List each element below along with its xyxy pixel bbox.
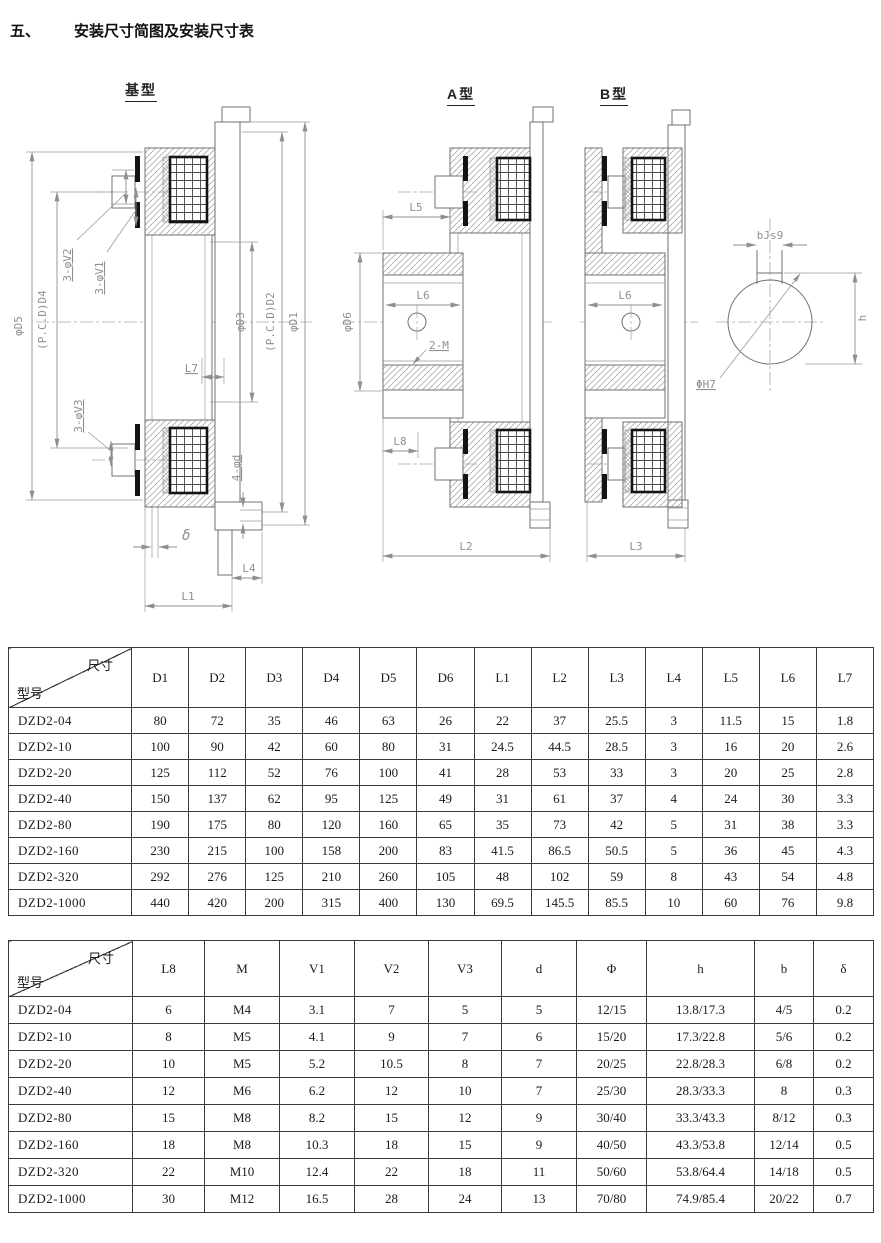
value-cell: 18 bbox=[355, 1132, 429, 1159]
model-cell: DZD2-04 bbox=[9, 708, 132, 734]
model-cell: DZD2-320 bbox=[9, 864, 132, 890]
value-cell: 20 bbox=[702, 760, 759, 786]
value-cell: 5 bbox=[645, 812, 702, 838]
value-cell: 53.8/64.4 bbox=[647, 1159, 755, 1186]
value-cell: 9 bbox=[355, 1024, 429, 1051]
value-cell: M5 bbox=[205, 1051, 280, 1078]
table-row: DZD2-16018M810.31815940/5043.3/53.812/14… bbox=[9, 1132, 874, 1159]
model-cell: DZD2-40 bbox=[9, 1078, 133, 1105]
value-cell: 0.3 bbox=[814, 1078, 874, 1105]
value-cell: 12 bbox=[355, 1078, 429, 1105]
type-a-drawing: 2-M L5 φD6 L6 L8 L2 bbox=[340, 100, 585, 570]
dim-label-b: bJs9 bbox=[757, 229, 784, 242]
value-cell: 62 bbox=[246, 786, 303, 812]
model-cell: DZD2-160 bbox=[9, 838, 132, 864]
value-cell: 5 bbox=[645, 838, 702, 864]
dim-l4: L4 bbox=[232, 532, 262, 584]
value-cell: 22 bbox=[133, 1159, 205, 1186]
pulley-hub bbox=[585, 253, 665, 418]
model-cell: DZD2-80 bbox=[9, 1105, 133, 1132]
value-cell: 65 bbox=[417, 812, 474, 838]
value-cell: 22 bbox=[474, 708, 531, 734]
corner-label-model: 型号 bbox=[17, 972, 43, 991]
value-cell: 26 bbox=[417, 708, 474, 734]
value-cell: 16 bbox=[702, 734, 759, 760]
keyway-detail: bJs9 h ΦH7 bbox=[696, 218, 869, 392]
value-cell: 80 bbox=[360, 734, 417, 760]
value-cell: 420 bbox=[189, 890, 246, 916]
value-cell: 41 bbox=[417, 760, 474, 786]
column-header: D6 bbox=[417, 648, 474, 708]
value-cell: 37 bbox=[531, 708, 588, 734]
value-cell: 0.2 bbox=[814, 997, 874, 1024]
value-cell: 0.5 bbox=[814, 1132, 874, 1159]
value-cell: 4 bbox=[645, 786, 702, 812]
value-cell: 12/14 bbox=[755, 1132, 814, 1159]
value-cell: 46 bbox=[303, 708, 360, 734]
value-cell: 17.3/22.8 bbox=[647, 1024, 755, 1051]
value-cell: 30 bbox=[759, 786, 816, 812]
value-cell: 28.3/33.3 bbox=[647, 1078, 755, 1105]
value-cell: 12 bbox=[429, 1105, 502, 1132]
value-cell: 190 bbox=[132, 812, 189, 838]
dim-label-h: h bbox=[856, 315, 869, 322]
value-cell: 100 bbox=[360, 760, 417, 786]
corner-label-size: 尺寸 bbox=[88, 948, 114, 967]
value-cell: 14/18 bbox=[755, 1159, 814, 1186]
value-cell: 6 bbox=[133, 997, 205, 1024]
corner-label-model: 型号 bbox=[17, 683, 43, 702]
value-cell: 3 bbox=[645, 760, 702, 786]
value-cell: 158 bbox=[303, 838, 360, 864]
dimension-table-2: 尺寸型号L8MV1V2V3dΦhbδDZD2-046M43.175512/151… bbox=[8, 940, 874, 1213]
value-cell: 125 bbox=[360, 786, 417, 812]
value-cell: 1.8 bbox=[816, 708, 873, 734]
model-cell: DZD2-10 bbox=[9, 734, 132, 760]
column-header: h bbox=[647, 941, 755, 997]
value-cell: 12 bbox=[133, 1078, 205, 1105]
dim-v3: 3-φV3 bbox=[72, 399, 111, 466]
column-header: D1 bbox=[132, 648, 189, 708]
value-cell: 74.9/85.4 bbox=[647, 1186, 755, 1213]
value-cell: 25.5 bbox=[588, 708, 645, 734]
value-cell: 85.5 bbox=[588, 890, 645, 916]
value-cell: 52 bbox=[246, 760, 303, 786]
value-cell: 86.5 bbox=[531, 838, 588, 864]
column-header: L5 bbox=[702, 648, 759, 708]
value-cell: 13 bbox=[502, 1186, 577, 1213]
value-cell: 200 bbox=[246, 890, 303, 916]
value-cell: 35 bbox=[246, 708, 303, 734]
figure-label-base-type: 基型 bbox=[125, 80, 157, 102]
value-cell: 0.2 bbox=[814, 1051, 874, 1078]
value-cell: 24 bbox=[702, 786, 759, 812]
value-cell: 20/22 bbox=[755, 1186, 814, 1213]
column-header: V2 bbox=[355, 941, 429, 997]
value-cell: 90 bbox=[189, 734, 246, 760]
table-row: DZD2-32022M1012.422181150/6053.8/64.414/… bbox=[9, 1159, 874, 1186]
column-header: b bbox=[755, 941, 814, 997]
diagonal-corner-header: 尺寸型号 bbox=[9, 941, 133, 997]
value-cell: 33.3/43.3 bbox=[647, 1105, 755, 1132]
value-cell: 4.1 bbox=[280, 1024, 355, 1051]
dim-label-h7: ΦH7 bbox=[696, 378, 716, 391]
value-cell: 3.3 bbox=[816, 786, 873, 812]
column-header: D4 bbox=[303, 648, 360, 708]
value-cell: 125 bbox=[246, 864, 303, 890]
column-header: D2 bbox=[189, 648, 246, 708]
column-header: L8 bbox=[133, 941, 205, 997]
value-cell: 100 bbox=[246, 838, 303, 864]
column-header: L4 bbox=[645, 648, 702, 708]
dim-label-v3: 3-φV3 bbox=[72, 399, 85, 432]
value-cell: 2.6 bbox=[816, 734, 873, 760]
value-cell: 44.5 bbox=[531, 734, 588, 760]
table-row: DZD2-10100904260803124.544.528.5316202.6 bbox=[9, 734, 874, 760]
pulley-hub bbox=[383, 253, 463, 418]
value-cell: 48 bbox=[474, 864, 531, 890]
value-cell: 20/25 bbox=[577, 1051, 647, 1078]
value-cell: 38 bbox=[759, 812, 816, 838]
value-cell: 50.5 bbox=[588, 838, 645, 864]
value-cell: 5 bbox=[429, 997, 502, 1024]
type-b-drawing: L6 L3 bJs9 h bbox=[580, 100, 880, 570]
value-cell: 60 bbox=[303, 734, 360, 760]
value-cell: 36 bbox=[702, 838, 759, 864]
value-cell: 0.7 bbox=[814, 1186, 874, 1213]
value-cell: 20 bbox=[759, 734, 816, 760]
value-cell: 200 bbox=[360, 838, 417, 864]
column-header: L3 bbox=[588, 648, 645, 708]
value-cell: 160 bbox=[360, 812, 417, 838]
value-cell: 6 bbox=[502, 1024, 577, 1051]
value-cell: 7 bbox=[355, 997, 429, 1024]
value-cell: 10 bbox=[645, 890, 702, 916]
value-cell: 43 bbox=[702, 864, 759, 890]
value-cell: 3 bbox=[645, 734, 702, 760]
column-header: V1 bbox=[280, 941, 355, 997]
model-cell: DZD2-04 bbox=[9, 997, 133, 1024]
dim-label-l5: L5 bbox=[409, 201, 422, 214]
model-cell: DZD2-80 bbox=[9, 812, 132, 838]
dim-label-delta: δ bbox=[182, 528, 190, 544]
value-cell: 3.1 bbox=[280, 997, 355, 1024]
value-cell: 35 bbox=[474, 812, 531, 838]
dim-label-d1: φD1 bbox=[287, 312, 300, 332]
value-cell: 137 bbox=[189, 786, 246, 812]
value-cell: M6 bbox=[205, 1078, 280, 1105]
value-cell: 315 bbox=[303, 890, 360, 916]
value-cell: M8 bbox=[205, 1105, 280, 1132]
value-cell: 400 bbox=[360, 890, 417, 916]
value-cell: 215 bbox=[189, 838, 246, 864]
value-cell: 440 bbox=[132, 890, 189, 916]
value-cell: 292 bbox=[132, 864, 189, 890]
dim-label-l6: L6 bbox=[618, 289, 631, 302]
value-cell: 28.5 bbox=[588, 734, 645, 760]
section-number: 五、 bbox=[10, 20, 74, 41]
value-cell: 12.4 bbox=[280, 1159, 355, 1186]
flange-plate bbox=[530, 107, 553, 528]
value-cell: 210 bbox=[303, 864, 360, 890]
value-cell: 15 bbox=[429, 1132, 502, 1159]
value-cell: 4.8 bbox=[816, 864, 873, 890]
value-cell: 40/50 bbox=[577, 1132, 647, 1159]
model-cell: DZD2-10 bbox=[9, 1024, 133, 1051]
value-cell: 175 bbox=[189, 812, 246, 838]
value-cell: 125 bbox=[132, 760, 189, 786]
column-header: L2 bbox=[531, 648, 588, 708]
table-row: DZD2-1602302151001582008341.586.550.5536… bbox=[9, 838, 874, 864]
dim-label-l3: L3 bbox=[629, 540, 642, 553]
dimension-table-1: 尺寸型号D1D2D3D4D5D6L1L2L3L4L5L6L7DZD2-04807… bbox=[8, 647, 874, 916]
value-cell: 28 bbox=[474, 760, 531, 786]
value-cell: 150 bbox=[132, 786, 189, 812]
value-cell: 18 bbox=[133, 1132, 205, 1159]
value-cell: 2.8 bbox=[816, 760, 873, 786]
value-cell: 276 bbox=[189, 864, 246, 890]
value-cell: 59 bbox=[588, 864, 645, 890]
table-row: DZD2-40150137629512549316137424303.3 bbox=[9, 786, 874, 812]
section-title: 安装尺寸简图及安装尺寸表 bbox=[74, 23, 254, 40]
value-cell: 12/15 bbox=[577, 997, 647, 1024]
table-row: DZD2-8015M88.21512930/4033.3/43.38/120.3 bbox=[9, 1105, 874, 1132]
value-cell: 0.3 bbox=[814, 1105, 874, 1132]
value-cell: 45 bbox=[759, 838, 816, 864]
value-cell: 9 bbox=[502, 1105, 577, 1132]
table-row: DZD2-100030M1216.528241370/8074.9/85.420… bbox=[9, 1186, 874, 1213]
rotor-hub bbox=[145, 235, 212, 558]
value-cell: 42 bbox=[246, 734, 303, 760]
dim-label-v2: 3-φV2 bbox=[61, 248, 74, 281]
corner-label-size: 尺寸 bbox=[87, 655, 113, 674]
column-header: D5 bbox=[360, 648, 417, 708]
value-cell: 8 bbox=[429, 1051, 502, 1078]
value-cell: 83 bbox=[417, 838, 474, 864]
table-row: DZD2-3202922761252102601054810259843544.… bbox=[9, 864, 874, 890]
value-cell: 4.3 bbox=[816, 838, 873, 864]
value-cell: 80 bbox=[246, 812, 303, 838]
value-cell: 230 bbox=[132, 838, 189, 864]
value-cell: 61 bbox=[531, 786, 588, 812]
value-cell: 63 bbox=[360, 708, 417, 734]
value-cell: 30/40 bbox=[577, 1105, 647, 1132]
dim-label-d6: φD6 bbox=[341, 312, 354, 332]
value-cell: 54 bbox=[759, 864, 816, 890]
value-cell: M5 bbox=[205, 1024, 280, 1051]
value-cell: 3.3 bbox=[816, 812, 873, 838]
dim-label-4d: 4-φd bbox=[230, 455, 243, 482]
value-cell: 31 bbox=[474, 786, 531, 812]
dim-l8: L8 bbox=[383, 418, 418, 458]
value-cell: 53 bbox=[531, 760, 588, 786]
value-cell: 7 bbox=[502, 1078, 577, 1105]
value-cell: 70/80 bbox=[577, 1186, 647, 1213]
value-cell: 7 bbox=[429, 1024, 502, 1051]
value-cell: 8 bbox=[133, 1024, 205, 1051]
value-cell: 8 bbox=[755, 1078, 814, 1105]
value-cell: 3 bbox=[645, 708, 702, 734]
column-header: d bbox=[502, 941, 577, 997]
value-cell: 24 bbox=[429, 1186, 502, 1213]
value-cell: 6/8 bbox=[755, 1051, 814, 1078]
value-cell: 11.5 bbox=[702, 708, 759, 734]
model-cell: DZD2-320 bbox=[9, 1159, 133, 1186]
value-cell: 102 bbox=[531, 864, 588, 890]
column-header: δ bbox=[814, 941, 874, 997]
model-cell: DZD2-1000 bbox=[9, 1186, 133, 1213]
dim-label-v1: 3-φV1 bbox=[93, 261, 106, 294]
table-row: DZD2-4012M66.21210725/3028.3/33.380.3 bbox=[9, 1078, 874, 1105]
value-cell: 42 bbox=[588, 812, 645, 838]
value-cell: 260 bbox=[360, 864, 417, 890]
model-cell: DZD2-40 bbox=[9, 786, 132, 812]
value-cell: 22.8/28.3 bbox=[647, 1051, 755, 1078]
value-cell: 0.5 bbox=[814, 1159, 874, 1186]
value-cell: 5.2 bbox=[280, 1051, 355, 1078]
column-header: Φ bbox=[577, 941, 647, 997]
model-cell: DZD2-20 bbox=[9, 1051, 133, 1078]
value-cell: 30 bbox=[133, 1186, 205, 1213]
value-cell: 31 bbox=[702, 812, 759, 838]
value-cell: 0.2 bbox=[814, 1024, 874, 1051]
value-cell: 22 bbox=[355, 1159, 429, 1186]
value-cell: 43.3/53.8 bbox=[647, 1132, 755, 1159]
model-cell: DZD2-20 bbox=[9, 760, 132, 786]
value-cell: 8 bbox=[645, 864, 702, 890]
value-cell: 15 bbox=[355, 1105, 429, 1132]
table-row: DZD2-046M43.175512/1513.8/17.34/50.2 bbox=[9, 997, 874, 1024]
dim-label-l1: L1 bbox=[181, 590, 194, 603]
dim-label-l7: L7 bbox=[185, 362, 198, 375]
column-header: L6 bbox=[759, 648, 816, 708]
value-cell: 8.2 bbox=[280, 1105, 355, 1132]
value-cell: 100 bbox=[132, 734, 189, 760]
dim-h7: ΦH7 bbox=[696, 274, 800, 391]
dim-h: h bbox=[784, 273, 869, 364]
value-cell: 10 bbox=[429, 1078, 502, 1105]
value-cell: 145.5 bbox=[531, 890, 588, 916]
value-cell: 9 bbox=[502, 1132, 577, 1159]
dim-label-l2: L2 bbox=[459, 540, 472, 553]
value-cell: 13.8/17.3 bbox=[647, 997, 755, 1024]
column-header: M bbox=[205, 941, 280, 997]
value-cell: 120 bbox=[303, 812, 360, 838]
value-cell: 50/60 bbox=[577, 1159, 647, 1186]
value-cell: 105 bbox=[417, 864, 474, 890]
dim-label-d2: (P.C.D)D2 bbox=[264, 292, 277, 352]
value-cell: 6.2 bbox=[280, 1078, 355, 1105]
value-cell: 130 bbox=[417, 890, 474, 916]
page-title: 五、安装尺寸简图及安装尺寸表 bbox=[10, 20, 254, 41]
value-cell: 72 bbox=[189, 708, 246, 734]
dim-label-l4: L4 bbox=[242, 562, 256, 575]
value-cell: 5/6 bbox=[755, 1024, 814, 1051]
dim-label-d4: (P.C.D)D4 bbox=[36, 290, 49, 350]
value-cell: 18 bbox=[429, 1159, 502, 1186]
value-cell: M8 bbox=[205, 1132, 280, 1159]
base-type-drawing: φD5 (P.C.D)D4 3-φV2 3-φV1 φD3 bbox=[0, 100, 330, 620]
value-cell: 16.5 bbox=[280, 1186, 355, 1213]
value-cell: 10 bbox=[133, 1051, 205, 1078]
value-cell: 33 bbox=[588, 760, 645, 786]
table-row: DZD2-04807235466326223725.5311.5151.8 bbox=[9, 708, 874, 734]
value-cell: 73 bbox=[531, 812, 588, 838]
dim-label-d3: φD3 bbox=[234, 312, 247, 332]
column-header: L7 bbox=[816, 648, 873, 708]
value-cell: 10.5 bbox=[355, 1051, 429, 1078]
value-cell: 28 bbox=[355, 1186, 429, 1213]
value-cell: 25 bbox=[759, 760, 816, 786]
model-cell: DZD2-1000 bbox=[9, 890, 132, 916]
value-cell: 8/12 bbox=[755, 1105, 814, 1132]
value-cell: 31 bbox=[417, 734, 474, 760]
table-row: DZD2-100044042020031540013069.5145.585.5… bbox=[9, 890, 874, 916]
value-cell: 15 bbox=[759, 708, 816, 734]
value-cell: 9.8 bbox=[816, 890, 873, 916]
table-row: DZD2-20125112527610041285333320252.8 bbox=[9, 760, 874, 786]
document-page: 五、安装尺寸简图及安装尺寸表 基型 A型 B型 bbox=[0, 0, 881, 1243]
column-header: V3 bbox=[429, 941, 502, 997]
value-cell: 69.5 bbox=[474, 890, 531, 916]
diagonal-corner-header: 尺寸型号 bbox=[9, 648, 132, 708]
value-cell: 25/30 bbox=[577, 1078, 647, 1105]
value-cell: 112 bbox=[189, 760, 246, 786]
model-cell: DZD2-160 bbox=[9, 1132, 133, 1159]
value-cell: 15/20 bbox=[577, 1024, 647, 1051]
dim-d1: φD1 bbox=[250, 122, 310, 525]
value-cell: 15 bbox=[133, 1105, 205, 1132]
dim-delta: δ bbox=[133, 528, 190, 547]
column-header: D3 bbox=[246, 648, 303, 708]
value-cell: M10 bbox=[205, 1159, 280, 1186]
dim-label-l8: L8 bbox=[393, 435, 406, 448]
dim-label-2m: 2-M bbox=[429, 339, 449, 352]
value-cell: 60 bbox=[702, 890, 759, 916]
value-cell: 24.5 bbox=[474, 734, 531, 760]
table-row: DZD2-108M54.197615/2017.3/22.85/60.2 bbox=[9, 1024, 874, 1051]
flange-plate bbox=[215, 107, 262, 575]
value-cell: 10.3 bbox=[280, 1132, 355, 1159]
value-cell: 4/5 bbox=[755, 997, 814, 1024]
value-cell: 49 bbox=[417, 786, 474, 812]
table-row: DZD2-2010M55.210.58720/2522.8/28.36/80.2 bbox=[9, 1051, 874, 1078]
column-header: L1 bbox=[474, 648, 531, 708]
value-cell: 80 bbox=[132, 708, 189, 734]
value-cell: 76 bbox=[303, 760, 360, 786]
value-cell: 41.5 bbox=[474, 838, 531, 864]
dim-label-l6: L6 bbox=[416, 289, 429, 302]
value-cell: 5 bbox=[502, 997, 577, 1024]
value-cell: 7 bbox=[502, 1051, 577, 1078]
value-cell: 95 bbox=[303, 786, 360, 812]
value-cell: 76 bbox=[759, 890, 816, 916]
dim-label-d5: φD5 bbox=[12, 316, 25, 336]
value-cell: 11 bbox=[502, 1159, 577, 1186]
value-cell: 37 bbox=[588, 786, 645, 812]
value-cell: M4 bbox=[205, 997, 280, 1024]
table-row: DZD2-801901758012016065357342531383.3 bbox=[9, 812, 874, 838]
value-cell: M12 bbox=[205, 1186, 280, 1213]
header-row: 尺寸型号D1D2D3D4D5D6L1L2L3L4L5L6L7 bbox=[9, 648, 874, 708]
header-row: 尺寸型号L8MV1V2V3dΦhbδ bbox=[9, 941, 874, 997]
